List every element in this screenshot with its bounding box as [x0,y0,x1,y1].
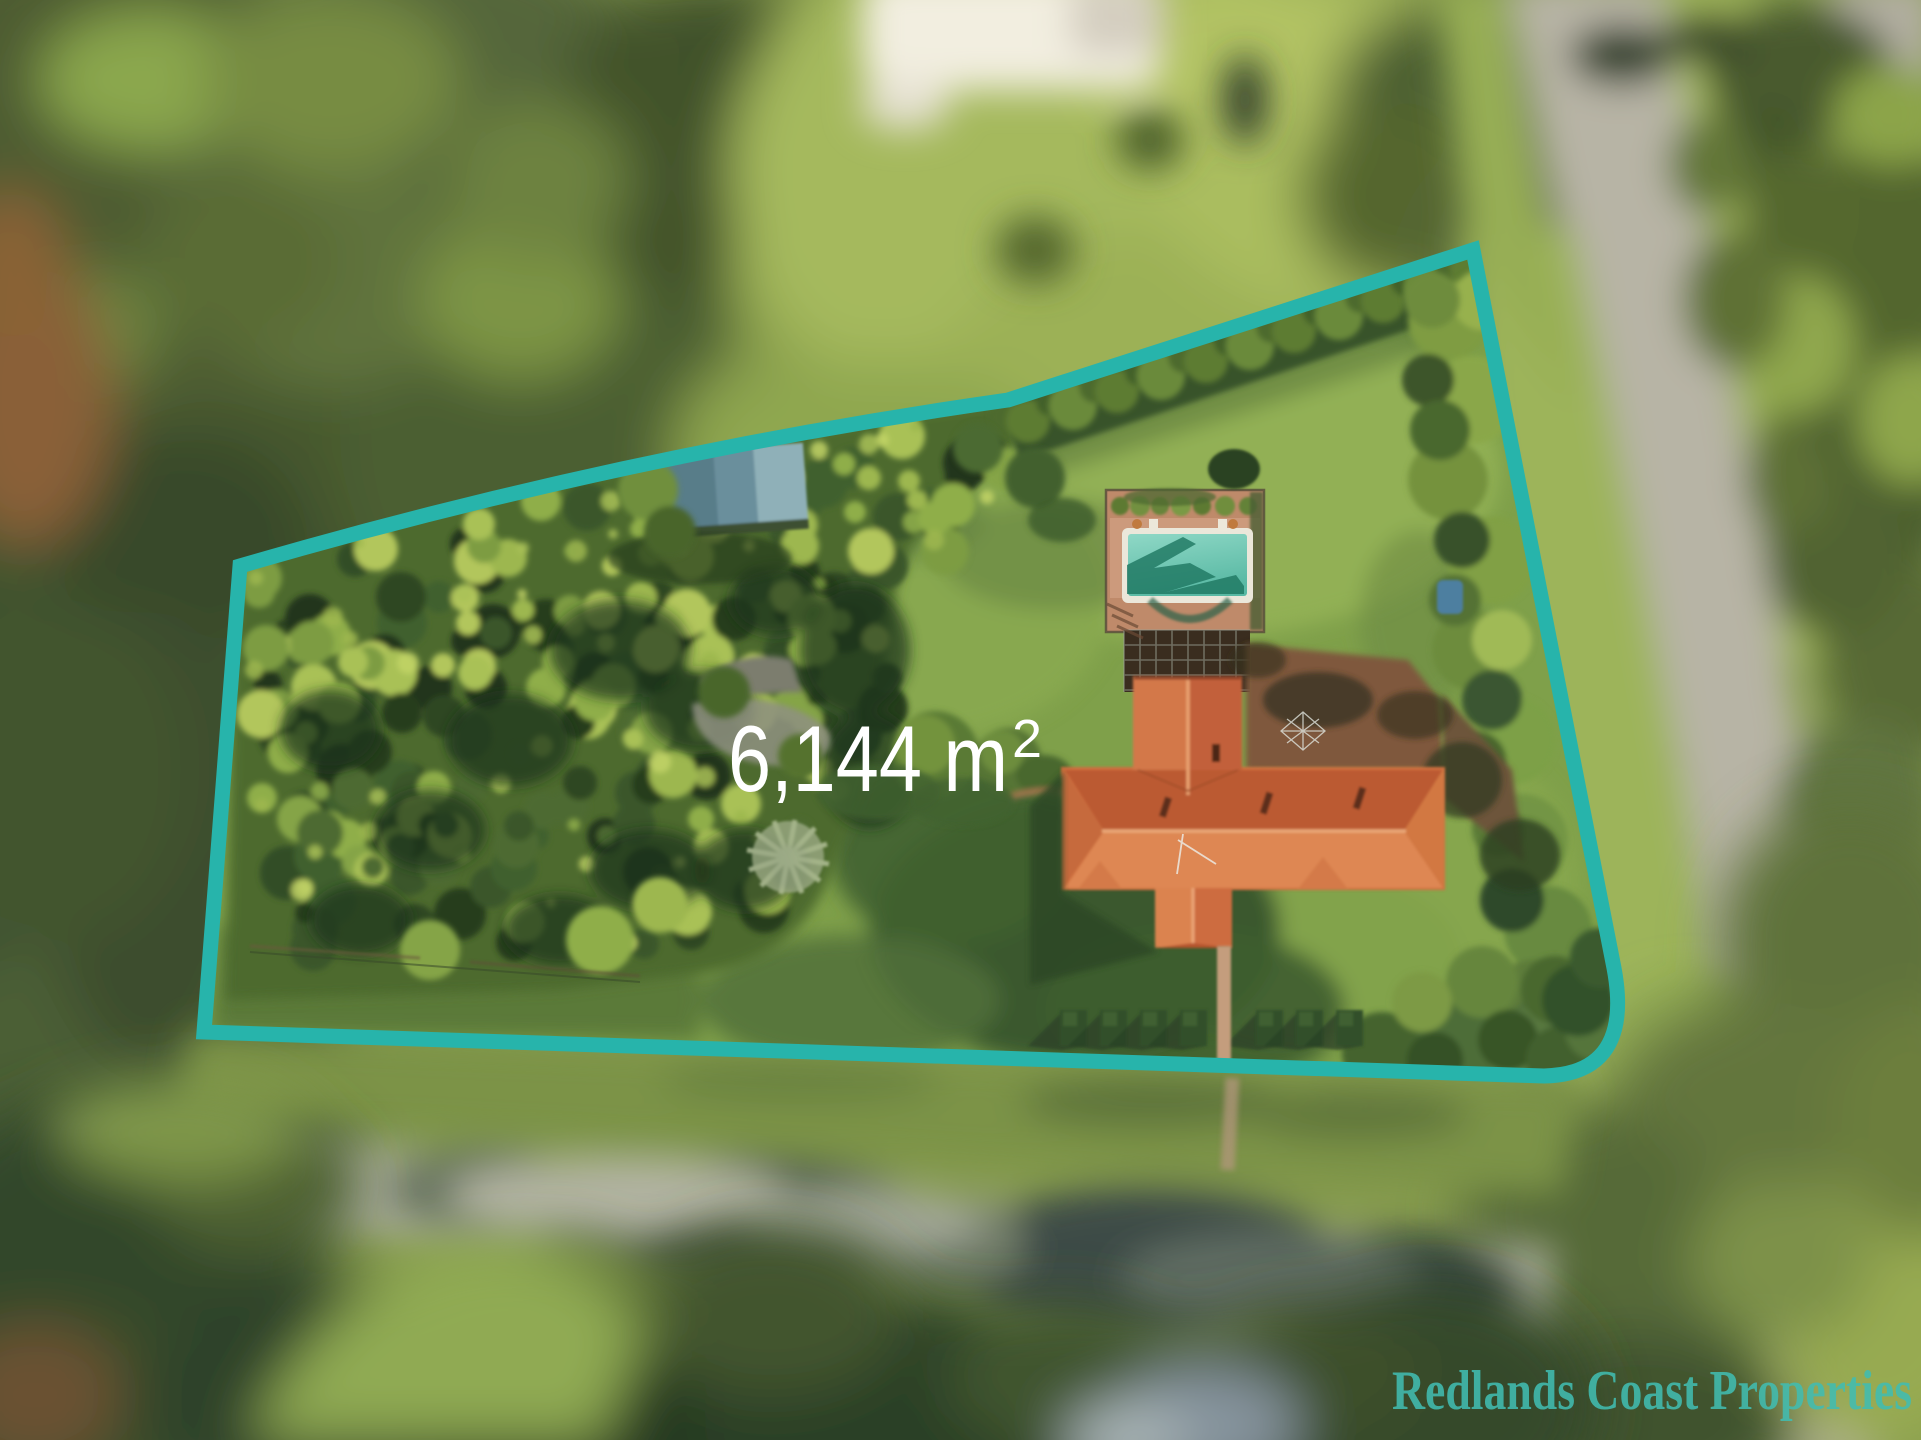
svg-text:2: 2 [1012,709,1042,769]
svg-text:6,144 m: 6,144 m [728,706,1008,811]
svg-text:Redlands Coast Properties: Redlands Coast Properties [1392,1360,1912,1422]
